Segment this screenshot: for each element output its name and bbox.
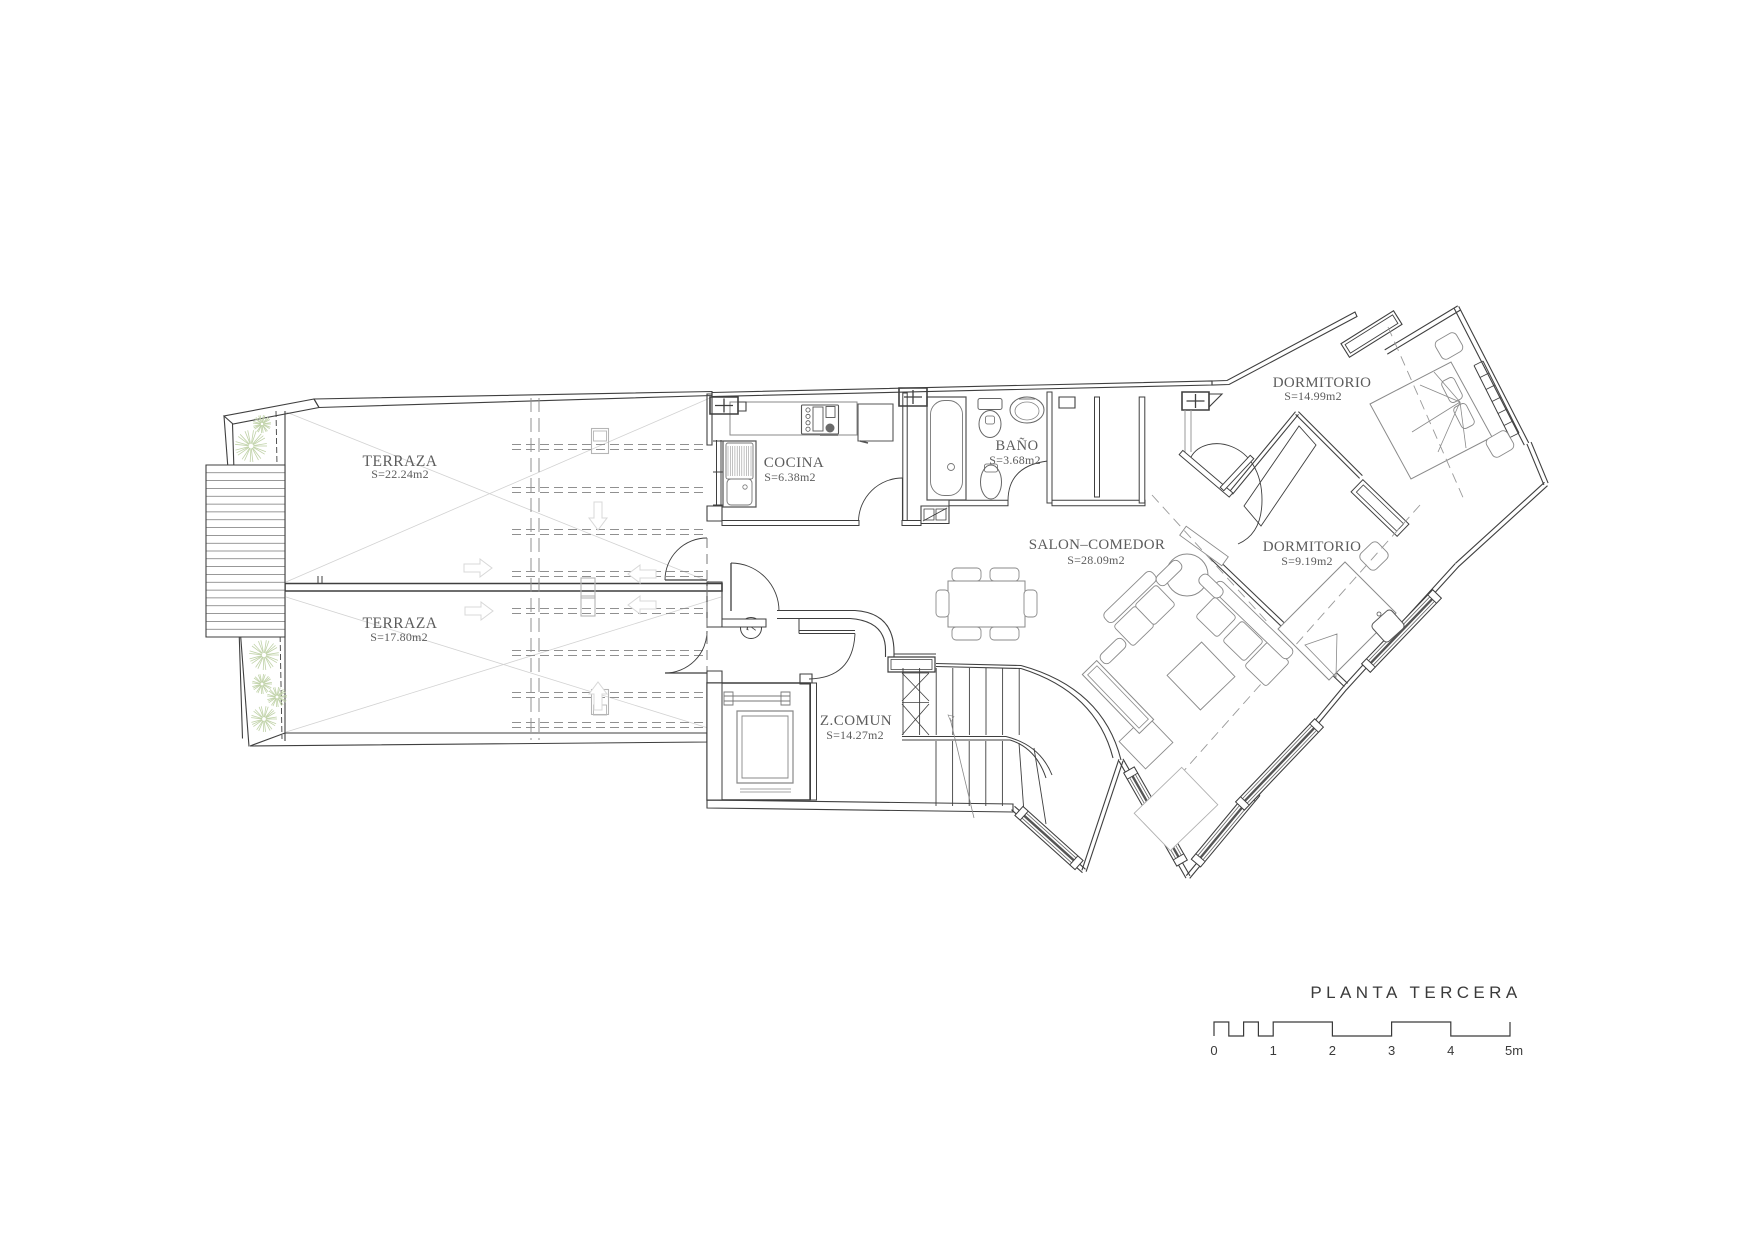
svg-text:5m: 5m	[1505, 1043, 1523, 1058]
svg-text:S=9.19m2: S=9.19m2	[1281, 554, 1332, 568]
svg-text:Z.COMUN: Z.COMUN	[820, 713, 892, 729]
svg-text:1: 1	[1270, 1043, 1277, 1058]
svg-text:S=14.99m2: S=14.99m2	[1284, 389, 1342, 403]
svg-text:3: 3	[1388, 1043, 1395, 1058]
svg-text:S=28.09m2: S=28.09m2	[1067, 553, 1125, 567]
svg-text:2: 2	[1329, 1043, 1336, 1058]
svg-text:4: 4	[1447, 1043, 1454, 1058]
svg-text:PLANTA TERCERA: PLANTA TERCERA	[1310, 983, 1521, 1002]
svg-text:S=22.24m2: S=22.24m2	[371, 467, 429, 481]
svg-text:0: 0	[1210, 1043, 1217, 1058]
svg-text:COCINA: COCINA	[764, 455, 825, 471]
svg-text:S=3.68m2: S=3.68m2	[989, 453, 1040, 467]
svg-text:BAÑO: BAÑO	[995, 438, 1038, 454]
svg-text:S=14.27m2: S=14.27m2	[826, 728, 884, 742]
svg-text:SALON–COMEDOR: SALON–COMEDOR	[1029, 537, 1165, 553]
svg-text:DORMITORIO: DORMITORIO	[1263, 539, 1362, 555]
svg-text:S=6.38m2: S=6.38m2	[764, 470, 815, 484]
svg-text:S=17.80m2: S=17.80m2	[370, 630, 428, 644]
